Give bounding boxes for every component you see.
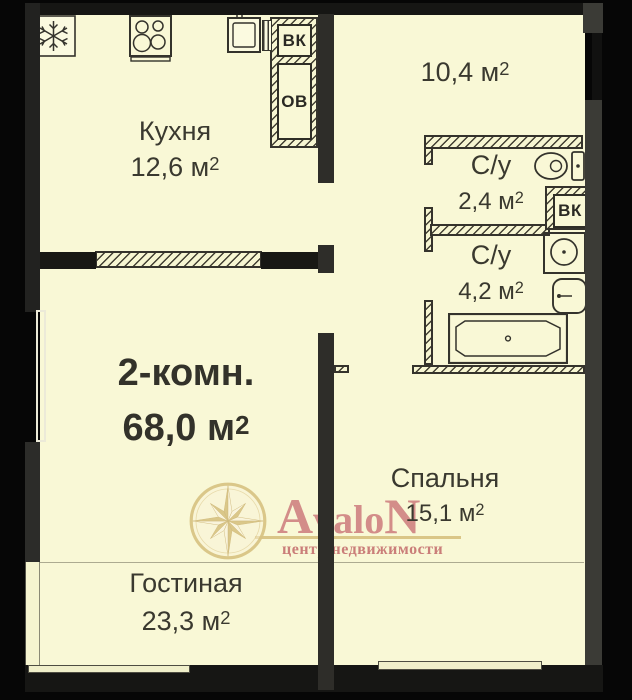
- living-name-label: Гостиная: [106, 568, 266, 599]
- hallway-unit: м: [481, 57, 500, 87]
- brand-tagline: центр недвижимости: [282, 541, 443, 559]
- dish-rack-icon: [262, 20, 272, 51]
- right-wall-upper: [592, 33, 602, 103]
- center-wall-lower: [318, 333, 334, 690]
- vk-bath-shaft: ВК: [553, 194, 587, 228]
- wc-large-unit-sup: 2: [515, 279, 524, 297]
- apartment-type-label: 2-комн.: [66, 352, 306, 395]
- right-wall: [585, 100, 602, 690]
- bedroom-area-value: 15,1: [406, 500, 453, 527]
- kitchen-area-value: 12,6: [131, 152, 184, 182]
- floor-plan-canvas: AvaloN центр недвижимости ВК ОВ ВК: [0, 0, 632, 700]
- apartment-unit: м: [207, 407, 235, 449]
- apartment-unit-sup: 2: [235, 412, 249, 440]
- faint-guide-line: [28, 562, 584, 563]
- wc-small-unit: м: [498, 188, 515, 215]
- kitchen-unit-sup: 2: [209, 153, 219, 174]
- bathtub-icon: [448, 313, 568, 364]
- left-wall-upper: [25, 3, 40, 312]
- hallway-area-value: 10,4: [421, 57, 474, 87]
- wc-large-area-value: 4,2: [458, 278, 491, 305]
- living-area-value: 23,3: [142, 606, 195, 636]
- kitchen-living-partition-cap-right: [261, 252, 319, 269]
- wc-small-unit-sup: 2: [515, 189, 524, 207]
- apartment-area-value: 68,0: [122, 407, 196, 449]
- apartment-area-label: 68,0 м2: [66, 407, 306, 450]
- center-wall-mid: [318, 245, 334, 273]
- living-room-window: [28, 665, 190, 673]
- ov-kitchen-shaft: ОВ: [277, 63, 312, 140]
- kitchen-sink-icon: [227, 10, 261, 54]
- wc-small-area-value: 2,4: [458, 188, 491, 215]
- top-right-corner-wall: [583, 3, 603, 33]
- vk-kitchen-shaft: ВК: [277, 24, 312, 57]
- top-wall: [25, 3, 603, 15]
- kitchen-living-partition-hatch: [95, 251, 262, 268]
- left-window-lower: [25, 562, 40, 665]
- kitchen-unit: м: [191, 152, 210, 182]
- bedroom-unit: м: [459, 500, 476, 527]
- vk-bath-label: ВК: [558, 201, 582, 221]
- living-unit: м: [202, 606, 221, 636]
- wc-large-wall: [424, 300, 433, 365]
- brand-first-letter: A: [277, 488, 313, 544]
- wc-small-name-label: С/у: [431, 150, 551, 181]
- ov-kitchen-label: ОВ: [281, 92, 308, 112]
- living-area-label: 23,3 м2: [106, 606, 266, 637]
- hallway-wc-partition: [424, 135, 583, 149]
- left-window-upper: [36, 310, 46, 442]
- wc-large-unit: м: [498, 278, 515, 305]
- hallway-unit-sup: 2: [499, 58, 509, 79]
- bedroom-door-stub: [334, 365, 349, 373]
- vanity-sink-icon: [551, 277, 588, 315]
- kitchen-area-label: 12,6 м2: [95, 152, 255, 183]
- bedroom-unit-sup: 2: [475, 501, 484, 519]
- compass-logo-icon: [188, 481, 268, 561]
- wc-large-bottom-wall: [412, 365, 585, 374]
- left-wall-mid: [25, 442, 40, 562]
- wc-small-wc-large-partition: [430, 224, 550, 236]
- bedroom-area-label: 15,1 м2: [365, 500, 525, 528]
- wc-large-area-label: 4,2 м2: [431, 278, 551, 306]
- wc-small-area-label: 2,4 м2: [431, 188, 551, 216]
- wc-large-name-label: С/у: [431, 240, 551, 271]
- bedroom-name-label: Спальня: [365, 463, 525, 494]
- living-unit-sup: 2: [220, 607, 230, 628]
- center-wall-upper: [318, 14, 334, 183]
- stove-icon: [129, 15, 172, 62]
- hallway-area-label: 10,4 м2: [385, 57, 545, 88]
- bedroom-window: [378, 661, 542, 670]
- vk-kitchen-label: ВК: [283, 31, 307, 51]
- kitchen-name-label: Кухня: [95, 116, 255, 147]
